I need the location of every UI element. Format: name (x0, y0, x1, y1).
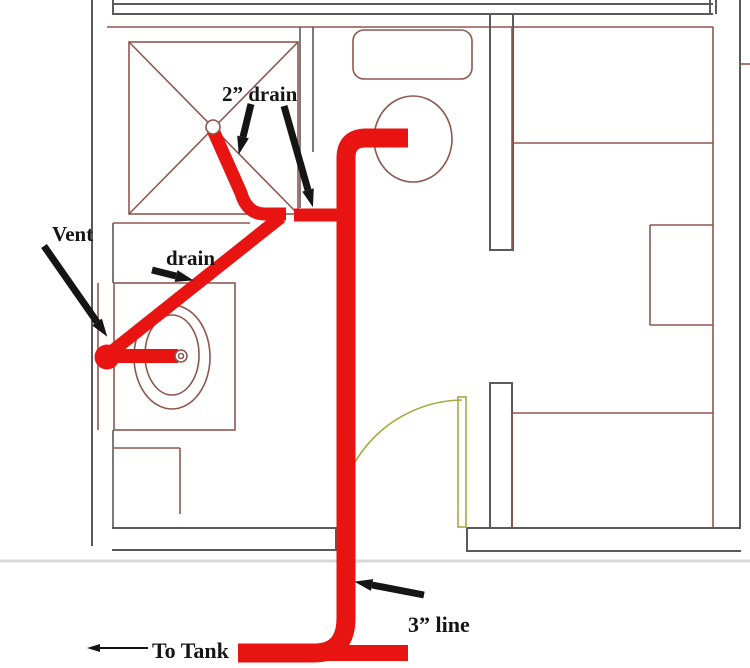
label-to-tank: To Tank (152, 638, 230, 663)
shower-drain-opening (206, 120, 220, 134)
label-3in-line: 3” line (408, 612, 470, 637)
drain2-arrow-right (284, 106, 308, 190)
line3-arrow (372, 585, 424, 595)
outer-walls (92, 0, 740, 545)
label-vent: Vent (52, 222, 93, 246)
sink-drain-line (110, 217, 281, 353)
plumbing-diagram: 2” drain Vent drain 3” line To Tank (0, 0, 750, 668)
door (355, 397, 466, 527)
sink-drain-opening (175, 350, 187, 362)
toilet (353, 30, 472, 182)
label-2in-drain: 2” drain (222, 82, 298, 106)
floorplan-canvas: 2” drain Vent drain 3” line To Tank (0, 0, 750, 668)
drain2-arrow-left (243, 104, 251, 137)
vent-point (95, 345, 120, 370)
counter-corner (114, 448, 180, 514)
shower-drain-line (213, 130, 286, 214)
drain-arrow (152, 270, 176, 276)
vent-arrow (44, 246, 97, 322)
shower-pan (113, 42, 298, 223)
label-drain: drain (166, 246, 215, 270)
